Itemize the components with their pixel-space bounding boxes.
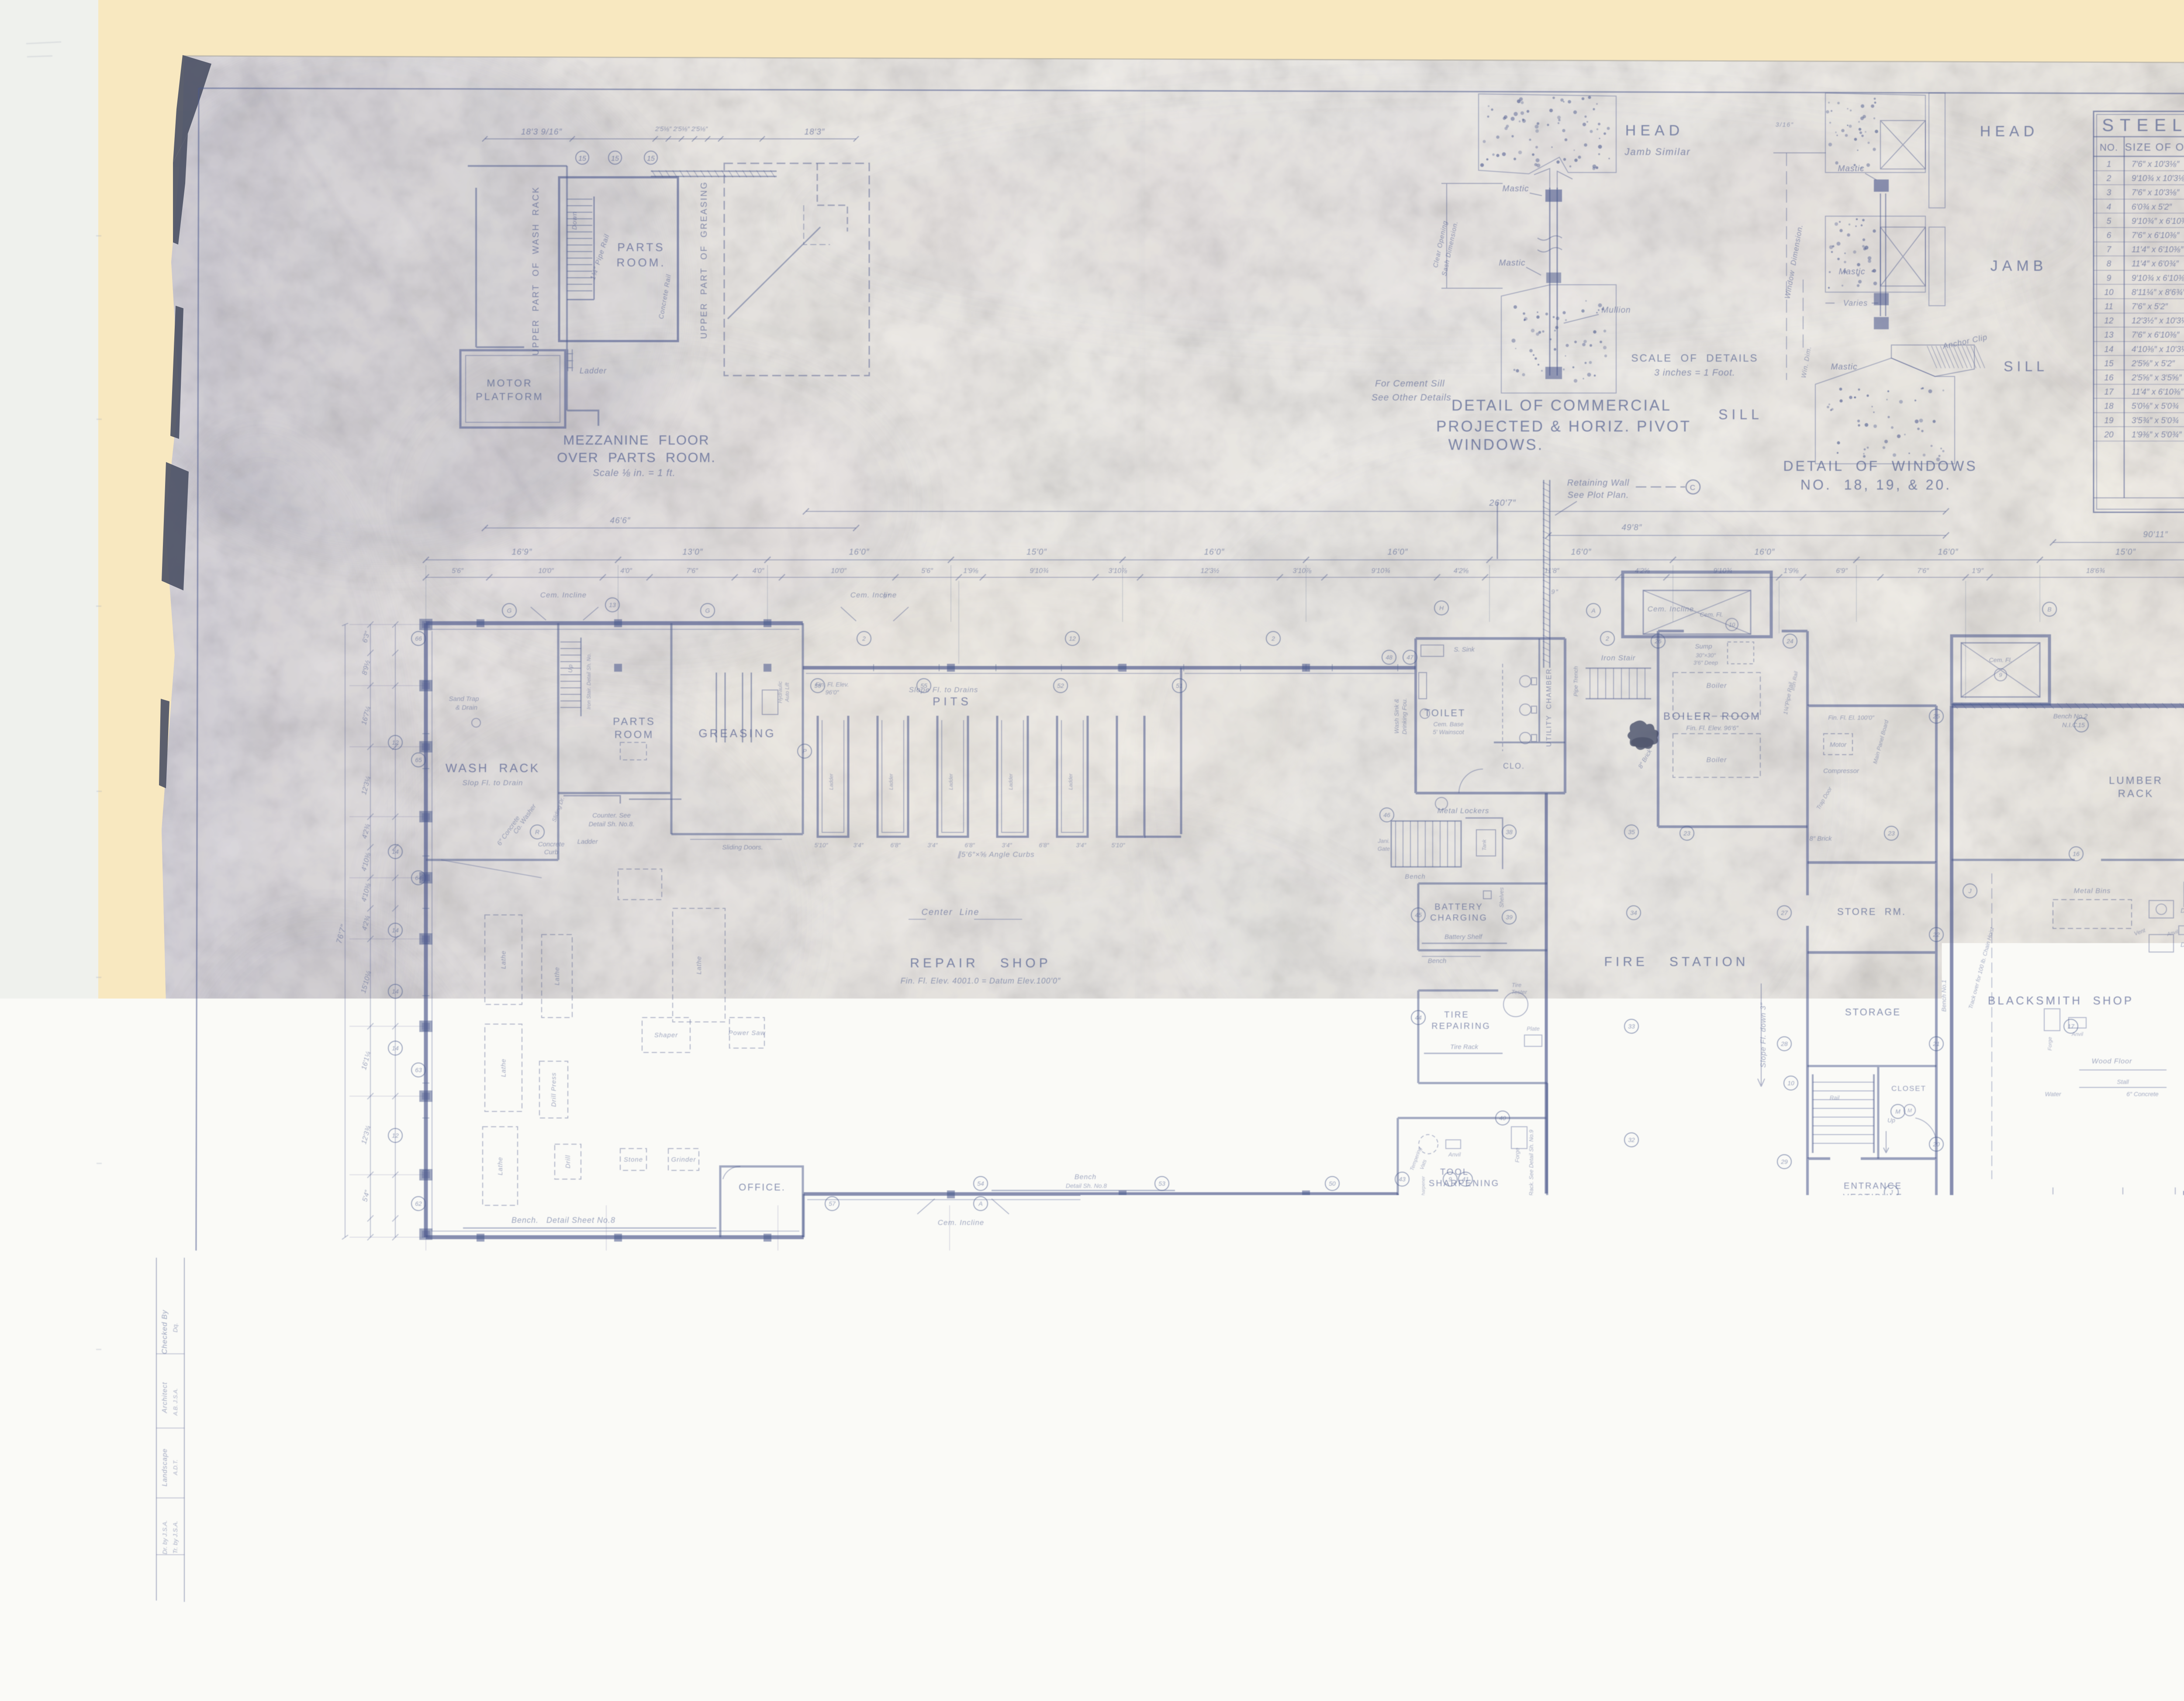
svg-text:Grinder: Grinder <box>671 1156 696 1163</box>
svg-text:UPPER PART OF GREASING: UPPER PART OF GREASING <box>699 181 709 339</box>
svg-text:6′9″: 6′9″ <box>1836 567 1848 575</box>
svg-text:5′ Wainscot: 5′ Wainscot <box>1433 728 1465 735</box>
svg-text:7′0″: 7′0″ <box>1846 1280 1858 1287</box>
svg-text:40: 40 <box>1499 1114 1506 1121</box>
svg-text:OFFICE.: OFFICE. <box>739 1182 786 1193</box>
svg-text:Dq.: Dq. <box>172 1323 179 1332</box>
svg-text:11: 11 <box>2105 302 2113 311</box>
svg-text:Boiler: Boiler <box>1707 682 1727 690</box>
svg-text:JAMB: JAMB <box>1990 258 2048 274</box>
svg-text:Metal Bins: Metal Bins <box>2074 887 2111 895</box>
svg-text:E: E <box>1448 1261 1452 1268</box>
svg-text:25: 25 <box>1932 713 1940 720</box>
svg-text:10′0″: 10′0″ <box>1712 1280 1728 1287</box>
svg-text:19: 19 <box>1923 1202 1930 1209</box>
svg-text:FIRE STATION: FIRE STATION <box>1604 955 1749 969</box>
svg-text:7′6″: 7′6″ <box>536 1280 548 1287</box>
svg-text:J: J <box>1890 1189 1894 1196</box>
svg-text:2: 2 <box>1072 1261 1076 1268</box>
svg-text:1: 1 <box>2107 160 2111 169</box>
svg-text:Bench No.1: Bench No.1 <box>1940 980 1947 1011</box>
svg-text:15′0″: 15′0″ <box>1199 1305 1216 1314</box>
svg-text:Gate: Gate <box>1378 845 1390 852</box>
svg-text:Fin. Fl. El. 100′0″: Fin. Fl. El. 100′0″ <box>1828 714 1875 721</box>
svg-text:16′0″: 16′0″ <box>1571 548 1592 557</box>
svg-text:G.E. Sotzmann: G.E. Sotzmann <box>2156 1533 2184 1547</box>
svg-text:Cem. Incline: Cem. Incline <box>938 1218 984 1227</box>
svg-text:Iron Stair. Detail Sh. No.: Iron Stair. Detail Sh. No. <box>586 653 592 710</box>
svg-text:14: 14 <box>392 988 399 995</box>
svg-text:7′6″: 7′6″ <box>836 1280 848 1287</box>
svg-text:Checked By: Checked By <box>160 1310 169 1354</box>
svg-text:10: 10 <box>1787 1080 1794 1087</box>
svg-text:Landscape: Landscape <box>161 1448 169 1486</box>
svg-text:All Finish Floors to be C: All Finish Floors to be Cement unless ot… <box>418 1456 685 1468</box>
svg-text:Curb: Curb <box>544 849 559 856</box>
svg-text:Cem. Incline: Cem. Incline <box>540 591 587 599</box>
svg-text:Mastic: Mastic <box>1831 362 1858 372</box>
svg-text:7′6″ x 6′10⅜″: 7′6″ x 6′10⅜″ <box>2132 231 2180 240</box>
svg-text:14′3″: 14′3″ <box>1259 1348 1275 1356</box>
svg-text:6″ Concrete: 6″ Concrete <box>2126 1090 2159 1097</box>
svg-text:LUMBER: LUMBER <box>2109 775 2163 787</box>
svg-text:WASH RACK: WASH RACK <box>446 761 540 775</box>
svg-text:65: 65 <box>415 756 422 763</box>
svg-text:SILL: SILL <box>2004 359 2048 374</box>
svg-text:40′6″: 40′6″ <box>598 1327 617 1335</box>
svg-text:17: 17 <box>2067 1023 2075 1030</box>
svg-text:55: 55 <box>920 682 927 689</box>
svg-text:12: 12 <box>2104 317 2114 326</box>
svg-text:16′0″: 16′0″ <box>1204 548 1225 557</box>
svg-text:Slope Fl. to Drains: Slope Fl. to Drains <box>909 686 978 694</box>
svg-text:STEEL WINDOW SCHEDULE: STEEL WINDOW SCHEDULE <box>2102 116 2184 135</box>
svg-text:27: 27 <box>1780 909 1788 916</box>
svg-text:Cem. Incline: Cem. Incline <box>1558 1262 1604 1270</box>
svg-text:5′10″: 5′10″ <box>815 842 829 849</box>
svg-text:13: 13 <box>2104 331 2114 340</box>
svg-text:BATTERY: BATTERY <box>1434 902 1483 912</box>
svg-text:Lathe: Lathe <box>497 1157 504 1176</box>
svg-text:2′5⅝″ x 3′5⅝″: 2′5⅝″ x 3′5⅝″ <box>2131 373 2182 383</box>
svg-text:54: 54 <box>977 1180 984 1187</box>
svg-text:3′4″: 3′4″ <box>1076 842 1086 849</box>
svg-text:Dr. by J.S.A.: Dr. by J.S.A. <box>161 1520 168 1554</box>
svg-text:TOILET: TOILET <box>1424 707 1466 718</box>
svg-text:3′10⅞: 3′10⅞ <box>1108 567 1127 575</box>
svg-text:16′0″: 16′0″ <box>1755 548 1775 557</box>
svg-text:11′8″: 11′8″ <box>1200 1280 1216 1287</box>
svg-text:4: 4 <box>1435 1284 1439 1291</box>
svg-text:& Drain: & Drain <box>456 704 477 711</box>
svg-text:19: 19 <box>2104 416 2114 425</box>
svg-text:15′0″: 15′0″ <box>1027 1305 1044 1314</box>
svg-text:Concurred: Concurred <box>2035 1561 2082 1571</box>
svg-text:Bench: Bench <box>1432 1213 1451 1220</box>
svg-text:∥5′6″×⅝ Angle Curbs: ∥5′6″×⅝ Angle Curbs <box>957 850 1034 859</box>
svg-text:7′6″: 7′6″ <box>1917 567 1929 575</box>
svg-text:3′6″ Deep: 3′6″ Deep <box>1693 659 1718 666</box>
svg-text:F. A. Kittredge: F. A. Kittredge <box>2156 1509 2184 1523</box>
svg-text:Auto Lift: Auto Lift <box>784 682 790 702</box>
svg-text:Ladder: Ladder <box>1008 773 1014 790</box>
svg-text:Power Saw: Power Saw <box>729 1029 766 1037</box>
svg-text:Cem. Incline: Cem. Incline <box>2104 1262 2150 1270</box>
svg-text:16: 16 <box>2104 373 2114 383</box>
svg-text:4′2⅝: 4′2⅝ <box>1291 1280 1306 1287</box>
svg-text:2: 2 <box>862 635 866 642</box>
svg-text:G: G <box>507 607 512 614</box>
svg-text:9: 9 <box>2107 274 2111 283</box>
svg-text:23: 23 <box>1683 830 1690 837</box>
svg-text:6′4¾: 6′4¾ <box>1512 1280 1527 1287</box>
svg-text:Hose Drying Rack. See Detail S: Hose Drying Rack. See Detail Sh. No.9 <box>1528 1130 1534 1228</box>
svg-text:Pipe Trench: Pipe Trench <box>1572 666 1579 696</box>
svg-text:STORE RM.: STORE RM. <box>1837 906 1906 917</box>
svg-text:Mullion: Mullion <box>1601 306 1631 315</box>
svg-text:10′0″: 10′0″ <box>831 567 847 575</box>
svg-text:90′11″: 90′11″ <box>2143 530 2168 539</box>
svg-text:11′4″ x 6′0¾″: 11′4″ x 6′0¾″ <box>2132 259 2179 269</box>
svg-text:UTILITY CHAMBER: UTILITY CHAMBER <box>1545 668 1553 747</box>
svg-text:4′0″: 4′0″ <box>753 567 765 575</box>
svg-text:A.B. J.S.A.: A.B. J.S.A. <box>172 1388 179 1416</box>
svg-text:NOTES: NOTES <box>391 1369 439 1382</box>
svg-text:REPAIRING: REPAIRING <box>1431 1021 1491 1031</box>
svg-text:47: 47 <box>1406 654 1414 661</box>
svg-text:Ladder: Ladder <box>577 838 598 845</box>
svg-text:3′4″: 3′4″ <box>1002 842 1012 849</box>
svg-text:1′9⅝: 1′9⅝ <box>963 567 978 575</box>
svg-text:N.I.C.: N.I.C. <box>2062 721 2079 729</box>
svg-text:Architect: Architect <box>161 1382 169 1413</box>
svg-text:Concrete: Concrete <box>538 841 565 848</box>
svg-text:9′10¾″ x 6′10⅜″: 9′10¾″ x 6′10⅜″ <box>2132 217 2184 226</box>
svg-text:3′0″: 3′0″ <box>1789 1280 1801 1287</box>
svg-text:20: 20 <box>2104 430 2114 439</box>
svg-text:15: 15 <box>2104 359 2114 368</box>
svg-text:Ladder: Ladder <box>948 773 954 790</box>
svg-text:6′4¾: 6′4¾ <box>1585 1280 1600 1287</box>
svg-text:Tire Rack: Tire Rack <box>1450 1043 1479 1051</box>
svg-text:3: 3 <box>2107 188 2111 197</box>
svg-text:8″ Brick: 8″ Brick <box>1809 835 1832 842</box>
svg-text:16′0″: 16′0″ <box>1548 1305 1565 1314</box>
svg-text:ROOM.: ROOM. <box>616 256 666 269</box>
svg-text:12: 12 <box>392 739 399 746</box>
svg-text:Fin. Fl. Elev. 96′6″: Fin. Fl. Elev. 96′6″ <box>1686 725 1738 732</box>
svg-text:16′0″: 16′0″ <box>849 548 870 557</box>
svg-text:Water: Water <box>2045 1090 2061 1097</box>
svg-text:33: 33 <box>1628 1023 1635 1030</box>
svg-text:38: 38 <box>1506 828 1513 835</box>
svg-text:Lathe: Lathe <box>553 967 561 986</box>
svg-text:Metal Lockers: Metal Lockers <box>1438 807 1489 815</box>
svg-text:Varies: Varies <box>1843 299 1868 307</box>
svg-text:Anvil: Anvil <box>2071 1031 2083 1037</box>
svg-text:J: J <box>1968 887 1972 894</box>
svg-text:2: 2 <box>1605 635 1609 642</box>
svg-text:11′8″: 11′8″ <box>1544 567 1560 575</box>
svg-text:Shaper: Shaper <box>654 1032 678 1039</box>
svg-text:Forge: Forge <box>1514 1148 1521 1163</box>
svg-text:13: 13 <box>609 601 616 608</box>
svg-text:Mastic: Mastic <box>1838 164 1865 173</box>
svg-text:35: 35 <box>1628 828 1635 835</box>
svg-text:C.G.Thomson: C.G.Thomson <box>2156 1557 2184 1571</box>
svg-text:7′1″: 7′1″ <box>2008 1280 2020 1287</box>
svg-text:5′6″: 5′6″ <box>452 567 464 575</box>
svg-text:3′4″: 3′4″ <box>1948 1280 1960 1287</box>
svg-text:30″×30″: 30″×30″ <box>1696 652 1716 659</box>
svg-text:15: 15 <box>647 155 655 162</box>
svg-text:9′10¾: 9′10¾ <box>1030 567 1048 575</box>
svg-text:All Openings in Tile Partit: All Openings in Tile Partitions to be pr… <box>425 1407 771 1418</box>
svg-text:SIZE OF OPENING: SIZE OF OPENING <box>2125 141 2184 153</box>
svg-text:7′6″ x 10′3⅛″: 7′6″ x 10′3⅛″ <box>2132 160 2180 169</box>
svg-text:16′0″: 16′0″ <box>1915 1305 1932 1314</box>
svg-text:C: C <box>890 1358 897 1367</box>
svg-text:8′11¼″ x 8′6¾″: 8′11¼″ x 8′6¾″ <box>2132 288 2184 297</box>
svg-text:VESTIBULE: VESTIBULE <box>1843 1193 1903 1202</box>
svg-text:31: 31 <box>1586 1259 1593 1266</box>
svg-text:22: 22 <box>1932 931 1940 938</box>
svg-text:6′4″: 6′4″ <box>915 1280 927 1287</box>
svg-text:7′6″ x 5′2″: 7′6″ x 5′2″ <box>2132 302 2168 311</box>
svg-text:Lathe: Lathe <box>695 956 703 975</box>
svg-text:18′6¾: 18′6¾ <box>2086 567 2105 575</box>
svg-text:4′5⅝: 4′5⅝ <box>602 1280 617 1287</box>
svg-text:NO. 18, 19, & 20.: NO. 18, 19, & 20. <box>1800 477 1952 493</box>
svg-text:Drill: Drill <box>2181 907 2184 914</box>
svg-text:A: A <box>1216 1254 1220 1261</box>
svg-text:Compressor: Compressor <box>1823 767 1859 775</box>
svg-text:46: 46 <box>1383 811 1390 818</box>
svg-text:Mastic: Mastic <box>1839 267 1866 276</box>
svg-text:15′0″: 15′0″ <box>2115 548 2136 557</box>
svg-text:Ladder: Ladder <box>888 773 894 790</box>
svg-text:Slope Fl. down 3″: Slope Fl. down 3″ <box>1759 1002 1767 1068</box>
svg-text:Center Line: Center Line <box>922 907 980 917</box>
svg-text:Concurred: Concurred <box>1773 1570 1818 1580</box>
svg-text:28: 28 <box>1780 1040 1788 1047</box>
svg-text:8: 8 <box>2107 259 2111 269</box>
svg-text:9′10¾: 9′10¾ <box>1371 567 1390 575</box>
svg-text:9″: 9″ <box>957 1263 965 1270</box>
svg-text:Edward A. Nickel: Edward A. Nickel <box>2156 1485 2184 1499</box>
svg-text:Recommended: Recommended <box>2035 1489 2103 1499</box>
svg-text:B: B <box>2047 606 2051 613</box>
svg-text:FIRST FLOOR PLAN: FIRST FLOOR PLAN <box>1274 1450 1600 1472</box>
svg-text:41: 41 <box>1462 1176 1469 1183</box>
svg-text:Tool: Tool <box>1403 1207 1409 1216</box>
svg-text:MEZZANINE FLOOR: MEZZANINE FLOOR <box>563 432 709 448</box>
svg-text:Tile which shall have a be: Tile which shall have a bearing of at le… <box>415 1424 695 1435</box>
svg-text:9′10¾: 9′10¾ <box>1027 1280 1046 1287</box>
svg-text:PLATFORM: PLATFORM <box>476 391 544 402</box>
svg-text:Jamb Similar: Jamb Similar <box>1624 146 1690 157</box>
svg-text:2: 2 <box>2106 174 2111 183</box>
svg-text:CLO.: CLO. <box>1503 762 1525 770</box>
svg-text:260′7″: 260′7″ <box>1489 498 1516 508</box>
svg-text:3′0″: 3′0″ <box>1640 1280 1652 1287</box>
svg-text:3/16″: 3/16″ <box>1776 121 1794 128</box>
svg-text:9: 9 <box>1999 672 2002 678</box>
svg-text:Battery Shelf: Battery Shelf <box>1444 933 1483 941</box>
svg-text:Stall: Stall <box>2117 1078 2129 1085</box>
svg-text:5′0⅛″ x 5′0¾: 5′0⅛″ x 5′0¾ <box>2132 402 2179 411</box>
svg-text:Bench No.2: Bench No.2 <box>2053 713 2088 720</box>
svg-text:Slop Fl. to Drain: Slop Fl. to Drain <box>463 779 523 787</box>
svg-text:15′9″: 15′9″ <box>508 1305 525 1314</box>
svg-text:1′9⅝: 1′9⅝ <box>961 1280 977 1287</box>
svg-text:Jani.: Jani. <box>1377 838 1389 844</box>
svg-text:7′6″ x 6′10⅜″: 7′6″ x 6′10⅜″ <box>2132 331 2180 340</box>
svg-text:TIRE: TIRE <box>1444 1010 1469 1020</box>
svg-text:NO.: NO. <box>2100 142 2118 153</box>
svg-text:Boiler: Boiler <box>1707 756 1727 764</box>
svg-text:Rail: Rail <box>1830 1094 1840 1101</box>
svg-text:A.D.T.: A.D.T. <box>172 1459 179 1476</box>
svg-text:Up: Up <box>567 664 574 673</box>
svg-text:42: 42 <box>1552 1245 1559 1252</box>
svg-text:Ladder: Ladder <box>580 366 607 375</box>
svg-text:15′0″: 15′0″ <box>684 1305 701 1314</box>
svg-text:74′11″: 74′11″ <box>1876 1353 1900 1362</box>
svg-text:3′10⅞: 3′10⅞ <box>1292 567 1312 575</box>
svg-text:A: A <box>1591 607 1595 614</box>
svg-text:5′6″: 5′6″ <box>921 567 933 575</box>
svg-text:G: G <box>705 607 710 614</box>
svg-text:26: 26 <box>1654 638 1662 645</box>
svg-text:MOTOR: MOTOR <box>487 377 532 389</box>
svg-text:30: 30 <box>1820 1259 1827 1266</box>
svg-text:43: 43 <box>1399 1176 1406 1183</box>
svg-text:H: H <box>1439 604 1444 611</box>
svg-text:11′4″ x 6′10⅜″: 11′4″ x 6′10⅜″ <box>2132 388 2184 397</box>
svg-text:12′3½: 12′3½ <box>1200 567 1219 575</box>
svg-text:3′4″: 3′4″ <box>927 842 938 849</box>
svg-text:E: E <box>1620 1261 1624 1268</box>
svg-text:Cem. Fl.: Cem. Fl. <box>1700 611 1723 618</box>
svg-text:24: 24 <box>1786 638 1794 645</box>
svg-text:Tank: Tank <box>1481 839 1487 851</box>
svg-text:21: 21 <box>1932 1040 1940 1047</box>
svg-text:HEAD: HEAD <box>1980 123 2039 140</box>
svg-text:18′3 9/16″: 18′3 9/16″ <box>521 128 563 137</box>
svg-text:Mastic: Mastic <box>1503 184 1529 193</box>
svg-text:57: 57 <box>829 1200 836 1207</box>
svg-text:18: 18 <box>2104 402 2114 411</box>
svg-text:49: 49 <box>1392 1200 1399 1207</box>
svg-text:Tester: Tester <box>1511 989 1527 995</box>
svg-text:3 inches = 1 Foot.: 3 inches = 1 Foot. <box>1654 368 1735 378</box>
svg-text:Bench: Bench <box>1075 1173 1096 1181</box>
svg-text:Approved: Approved <box>2035 1586 2078 1596</box>
svg-text:M.F.: M.F. <box>1821 1232 1831 1238</box>
svg-text:32: 32 <box>1628 1136 1635 1143</box>
svg-text:64: 64 <box>415 874 422 881</box>
svg-text:WINDOWS.: WINDOWS. <box>1448 436 1544 453</box>
svg-text:9′10¾ x 6′10⅜″: 9′10¾ x 6′10⅜″ <box>2132 274 2184 283</box>
svg-text:PROJECTED & HORIZ. PIVOT: PROJECTED & HORIZ. PIVOT <box>1436 418 1691 435</box>
svg-text:7: 7 <box>2107 245 2112 255</box>
svg-text:9′10¾: 9′10¾ <box>682 1280 701 1287</box>
svg-text:STORAGE: STORAGE <box>1845 1007 1901 1018</box>
svg-text:Drinking Fou.: Drinking Fou. <box>1401 698 1408 734</box>
svg-text:12: 12 <box>392 1132 399 1139</box>
svg-text:Shelves: Shelves <box>1498 887 1505 907</box>
svg-text:Sliding Doors.: Sliding Doors. <box>722 844 763 851</box>
svg-text:6′4″: 6′4″ <box>456 1280 469 1287</box>
svg-text:Drill: Drill <box>564 1155 572 1169</box>
svg-text:9′10¾ x 10′3⅛″: 9′10¾ x 10′3⅛″ <box>2132 174 2184 183</box>
svg-text:96′0″: 96′0″ <box>826 689 840 696</box>
svg-text:51: 51 <box>1176 682 1183 689</box>
svg-text:6: 6 <box>2107 231 2111 240</box>
svg-text:15′0″: 15′0″ <box>856 1305 873 1314</box>
svg-text:53: 53 <box>1158 1180 1165 1187</box>
svg-text:48: 48 <box>1386 654 1393 661</box>
svg-text:6′0¾ x 5′2″: 6′0¾ x 5′2″ <box>2132 203 2172 212</box>
svg-text:15: 15 <box>2078 721 2085 728</box>
svg-text:4′10⅜″ x 10′3⅛″: 4′10⅜″ x 10′3⅛″ <box>2132 345 2184 354</box>
svg-text:29: 29 <box>1780 1158 1788 1165</box>
svg-text:Hydraulic: Hydraulic <box>777 681 783 703</box>
svg-text:Tire Sharpener: Tire Sharpener <box>1421 1176 1426 1208</box>
svg-text:RACK: RACK <box>2118 788 2154 800</box>
svg-text:Cem. Platform: Cem. Platform <box>1857 1251 1908 1259</box>
svg-text:Scale ⅛ inch = 1 foot.: Scale ⅛ inch = 1 foot. <box>1364 1480 1493 1493</box>
svg-text:C: C <box>1690 483 1696 492</box>
svg-text:S. Sink: S. Sink <box>1454 646 1475 653</box>
svg-text:2′5⅛″ 2′5⅛″ 2′5⅛″: 2′5⅛″ 2′5⅛″ 2′5⅛″ <box>655 125 708 133</box>
svg-text:Bench. Detail Sheet No.8: Bench. Detail Sheet No.8 <box>511 1216 615 1225</box>
svg-text:18′3″: 18′3″ <box>805 128 825 137</box>
svg-text:Bench: Bench <box>1405 873 1426 880</box>
svg-text:CLOSET: CLOSET <box>1891 1084 1926 1093</box>
svg-text:6′8″: 6′8″ <box>890 842 901 849</box>
svg-text:63: 63 <box>415 1066 422 1073</box>
svg-text:Sand Trap: Sand Trap <box>449 695 479 703</box>
svg-text:Drill: Drill <box>2181 941 2184 949</box>
svg-text:7′6″: 7′6″ <box>686 567 698 575</box>
svg-text:16′0″: 16′0″ <box>1731 1305 1749 1314</box>
svg-text:7′6″ x 10′3⅛″: 7′6″ x 10′3⅛″ <box>2132 188 2180 197</box>
svg-text:B: B <box>2027 1284 2031 1291</box>
svg-text:M: M <box>1895 1108 1901 1115</box>
svg-text:HEAD: HEAD <box>1625 122 1684 139</box>
svg-text:OVER PARTS ROOM.: OVER PARTS ROOM. <box>557 450 716 465</box>
svg-text:9″: 9″ <box>883 593 891 600</box>
svg-text:Cem. Base: Cem. Base <box>1433 721 1463 728</box>
svg-text:Iron Stair: Iron Stair <box>1601 654 1636 662</box>
svg-text:16′9″: 16′9″ <box>512 548 532 557</box>
svg-text:Counter. See: Counter. See <box>592 812 631 819</box>
svg-text:52: 52 <box>1057 682 1064 689</box>
svg-text:2: 2 <box>1271 635 1275 642</box>
svg-text:15: 15 <box>611 155 619 162</box>
svg-text:4′2⅝: 4′2⅝ <box>1454 567 1469 575</box>
svg-text:Sump: Sump <box>1695 643 1712 650</box>
svg-text:4′5⅝: 4′5⅝ <box>766 1280 781 1287</box>
svg-text:Detail Sh. No.8.: Detail Sh. No.8. <box>588 821 634 828</box>
svg-text:ROOM: ROOM <box>615 729 654 741</box>
svg-text:51′3⅝: 51′3⅝ <box>1016 1353 1037 1362</box>
svg-text:Ceiling over Wash Rack to: Ceiling over Wash Rack to be plastered o… <box>418 1440 684 1452</box>
svg-text:15′0″: 15′0″ <box>2093 1305 2110 1314</box>
svg-text:13′0″: 13′0″ <box>683 548 703 557</box>
